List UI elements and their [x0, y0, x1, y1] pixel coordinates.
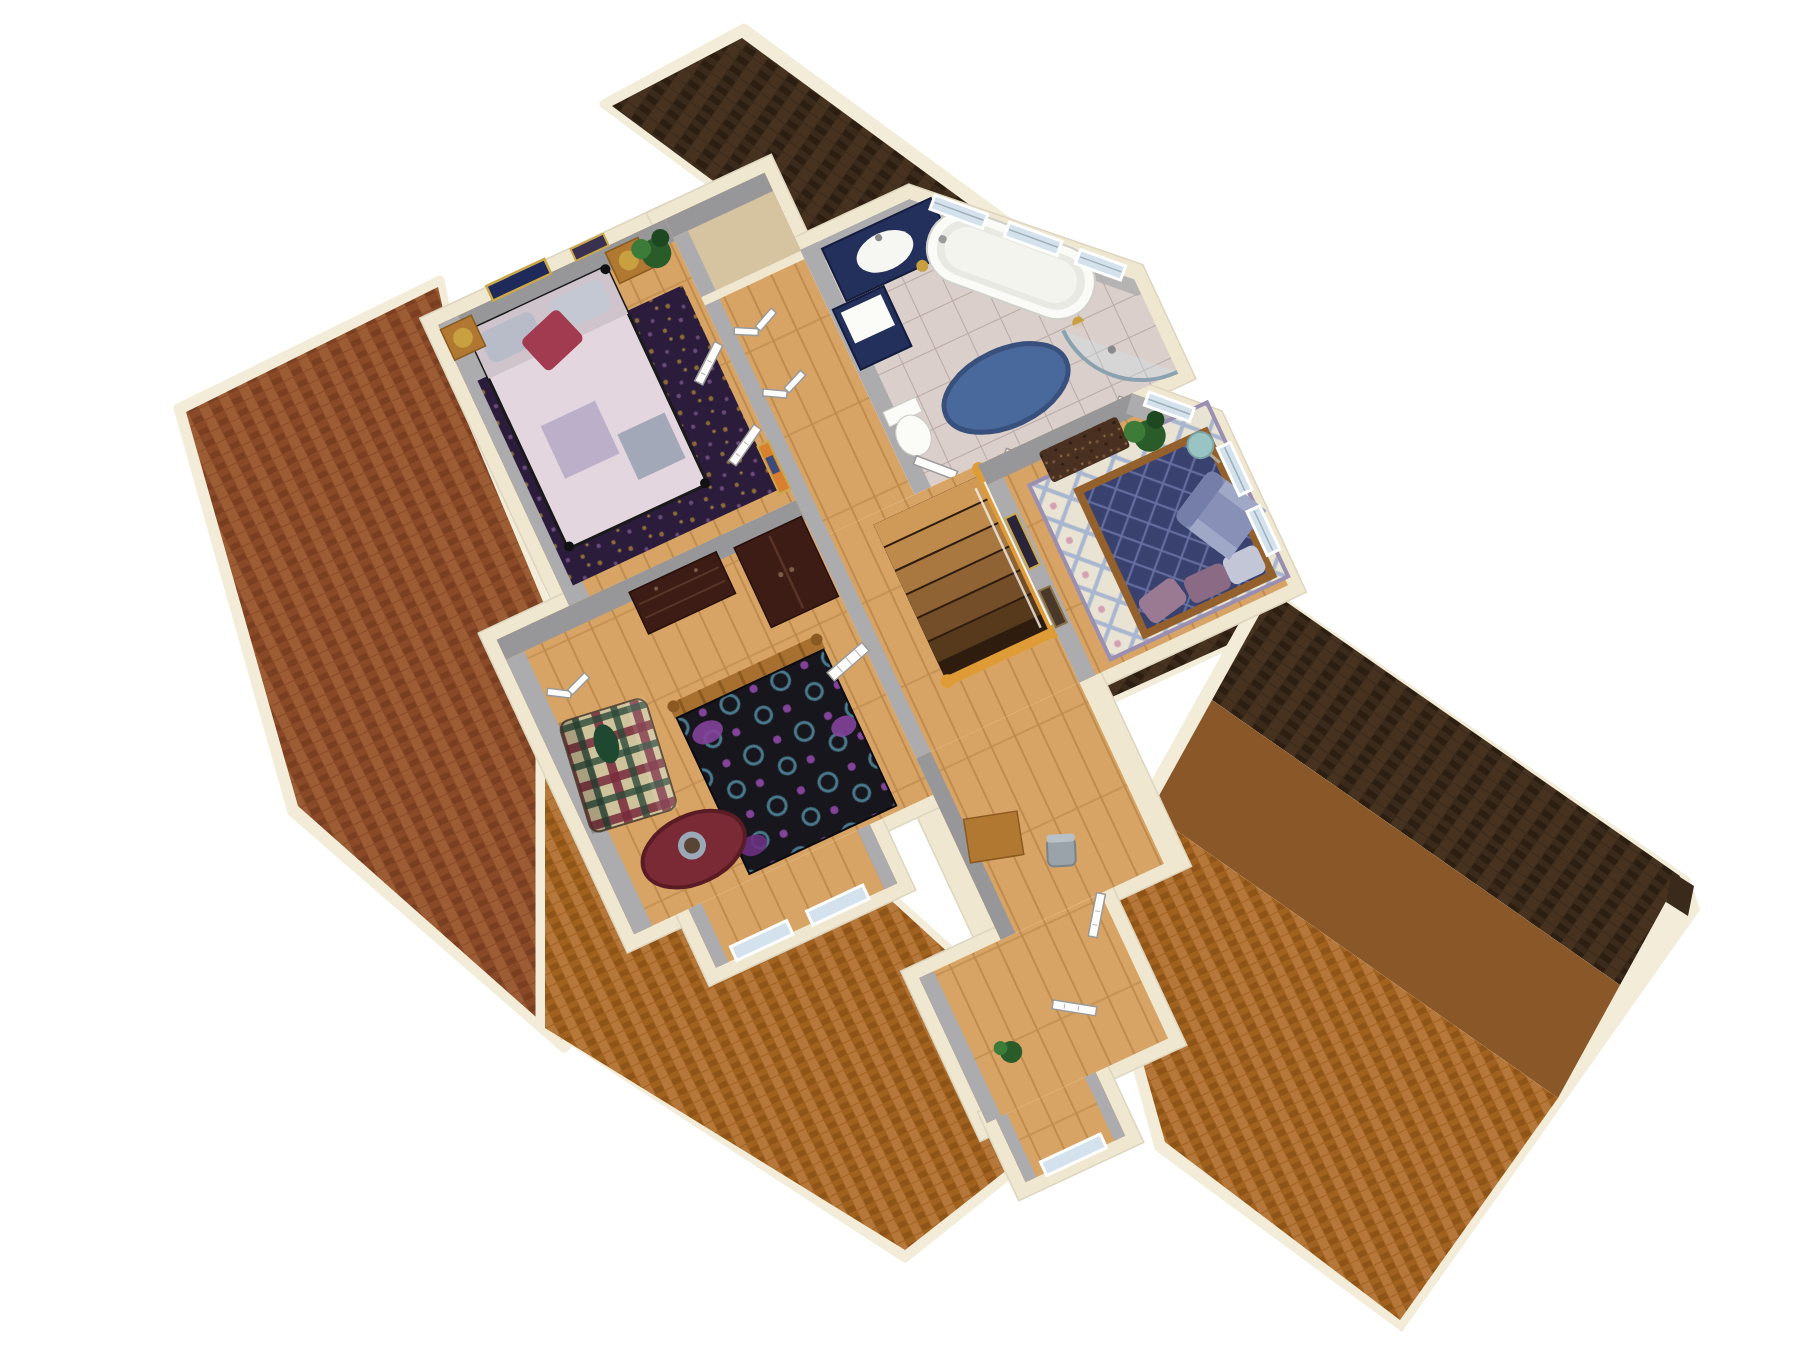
floorplan-rendering — [0, 0, 1800, 1372]
floorplan-stage — [0, 0, 1800, 1372]
hall-desk — [964, 811, 1024, 863]
hall-chair-gray — [1046, 833, 1076, 866]
